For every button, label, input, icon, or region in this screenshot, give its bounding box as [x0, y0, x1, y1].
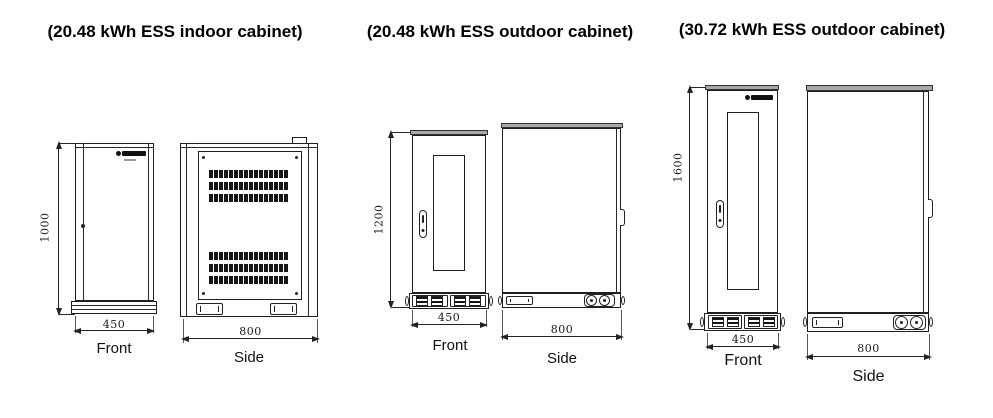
width-dimension-line — [707, 346, 779, 347]
figure-outdoor-30kwh: (30.72 kWh ESS outdoor cabinet) 1600 — [0, 0, 993, 418]
door-edge-seam — [923, 91, 924, 313]
cable-gland-icon — [895, 316, 908, 329]
height-dimension-line — [689, 87, 690, 329]
depth-dimension-line — [807, 356, 930, 357]
cabinet-side-outline — [807, 91, 929, 313]
louver-icon — [712, 317, 724, 327]
base-end-cap — [929, 317, 933, 327]
base-end-cap — [803, 317, 807, 327]
louver-icon — [763, 317, 775, 327]
front-view-label: Front — [700, 352, 786, 370]
height-dimension-value: 1600 — [672, 148, 685, 188]
width-dimension-value: 450 — [707, 333, 779, 346]
base-end-cap — [781, 317, 785, 327]
base-connector-plate — [812, 317, 843, 328]
louver-icon — [748, 317, 760, 327]
louver-icon — [727, 317, 739, 327]
drawing-canvas: (20.48 kWh ESS indoor cabinet) 1000 — [0, 0, 993, 418]
side-view-label: Side — [807, 368, 930, 386]
cable-gland-icon — [910, 316, 923, 329]
door-handle — [716, 200, 724, 228]
door-window — [727, 112, 759, 290]
depth-dimension-value: 800 — [807, 342, 930, 355]
base-end-cap — [700, 317, 704, 327]
door-handle-profile — [928, 199, 933, 218]
brand-logo-icon — [745, 95, 773, 100]
figure-title: (30.72 kWh ESS outdoor cabinet) — [672, 20, 952, 40]
